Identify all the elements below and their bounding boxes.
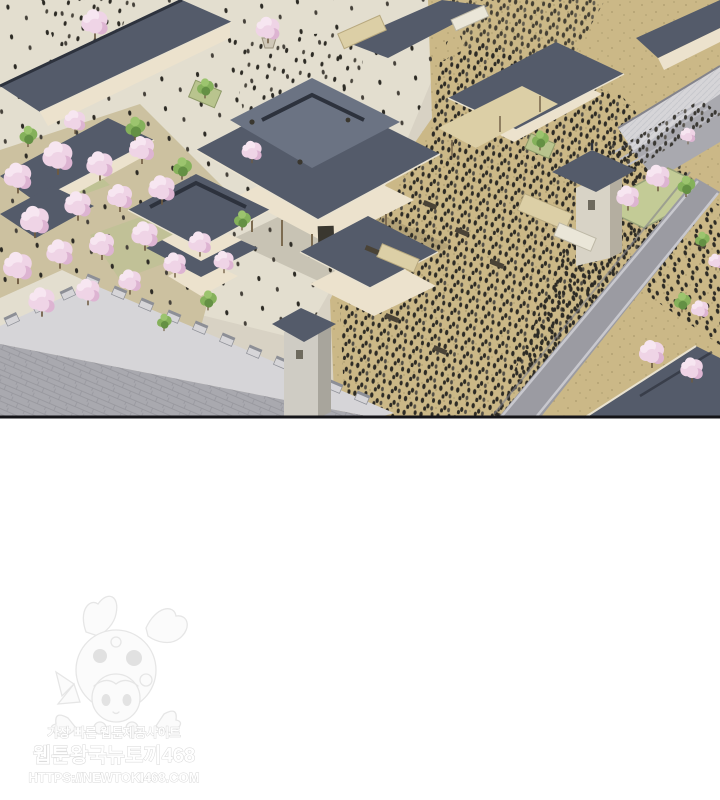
brazier <box>346 118 351 123</box>
mascot-eye <box>102 694 111 706</box>
webtoon-panel-illustration <box>0 0 720 420</box>
brazier <box>249 119 254 124</box>
corner-tower-window <box>296 350 303 359</box>
mascot-hood-spot <box>93 649 107 663</box>
watermark-site-url: HTTPS://NEWTOKI468.COM <box>29 770 200 785</box>
site-watermark: 가장 빠른 웹툰제공사이트 웹툰왕국뉴토끼468 HTTPS://NEWTOKI… <box>28 580 220 796</box>
panel-border <box>0 416 720 419</box>
mascot-hood-spot <box>126 650 142 666</box>
brazier <box>297 159 302 164</box>
mascot-eye <box>123 694 132 706</box>
tree-pot <box>262 38 276 48</box>
watermark-tagline: 가장 빠른 웹툰제공사이트 <box>47 725 181 740</box>
watchtower-window <box>588 200 595 210</box>
mascot-ear-right <box>146 609 187 643</box>
mascot-illustration <box>51 596 187 736</box>
mascot-face <box>92 674 140 722</box>
webtoon-page: 가장 빠른 웹툰제공사이트 웹툰왕국뉴토끼468 HTTPS://NEWTOKI… <box>0 0 720 800</box>
watchtower-side <box>610 172 622 258</box>
watermark-site-name: 웹툰왕국뉴토끼468 <box>33 744 195 767</box>
